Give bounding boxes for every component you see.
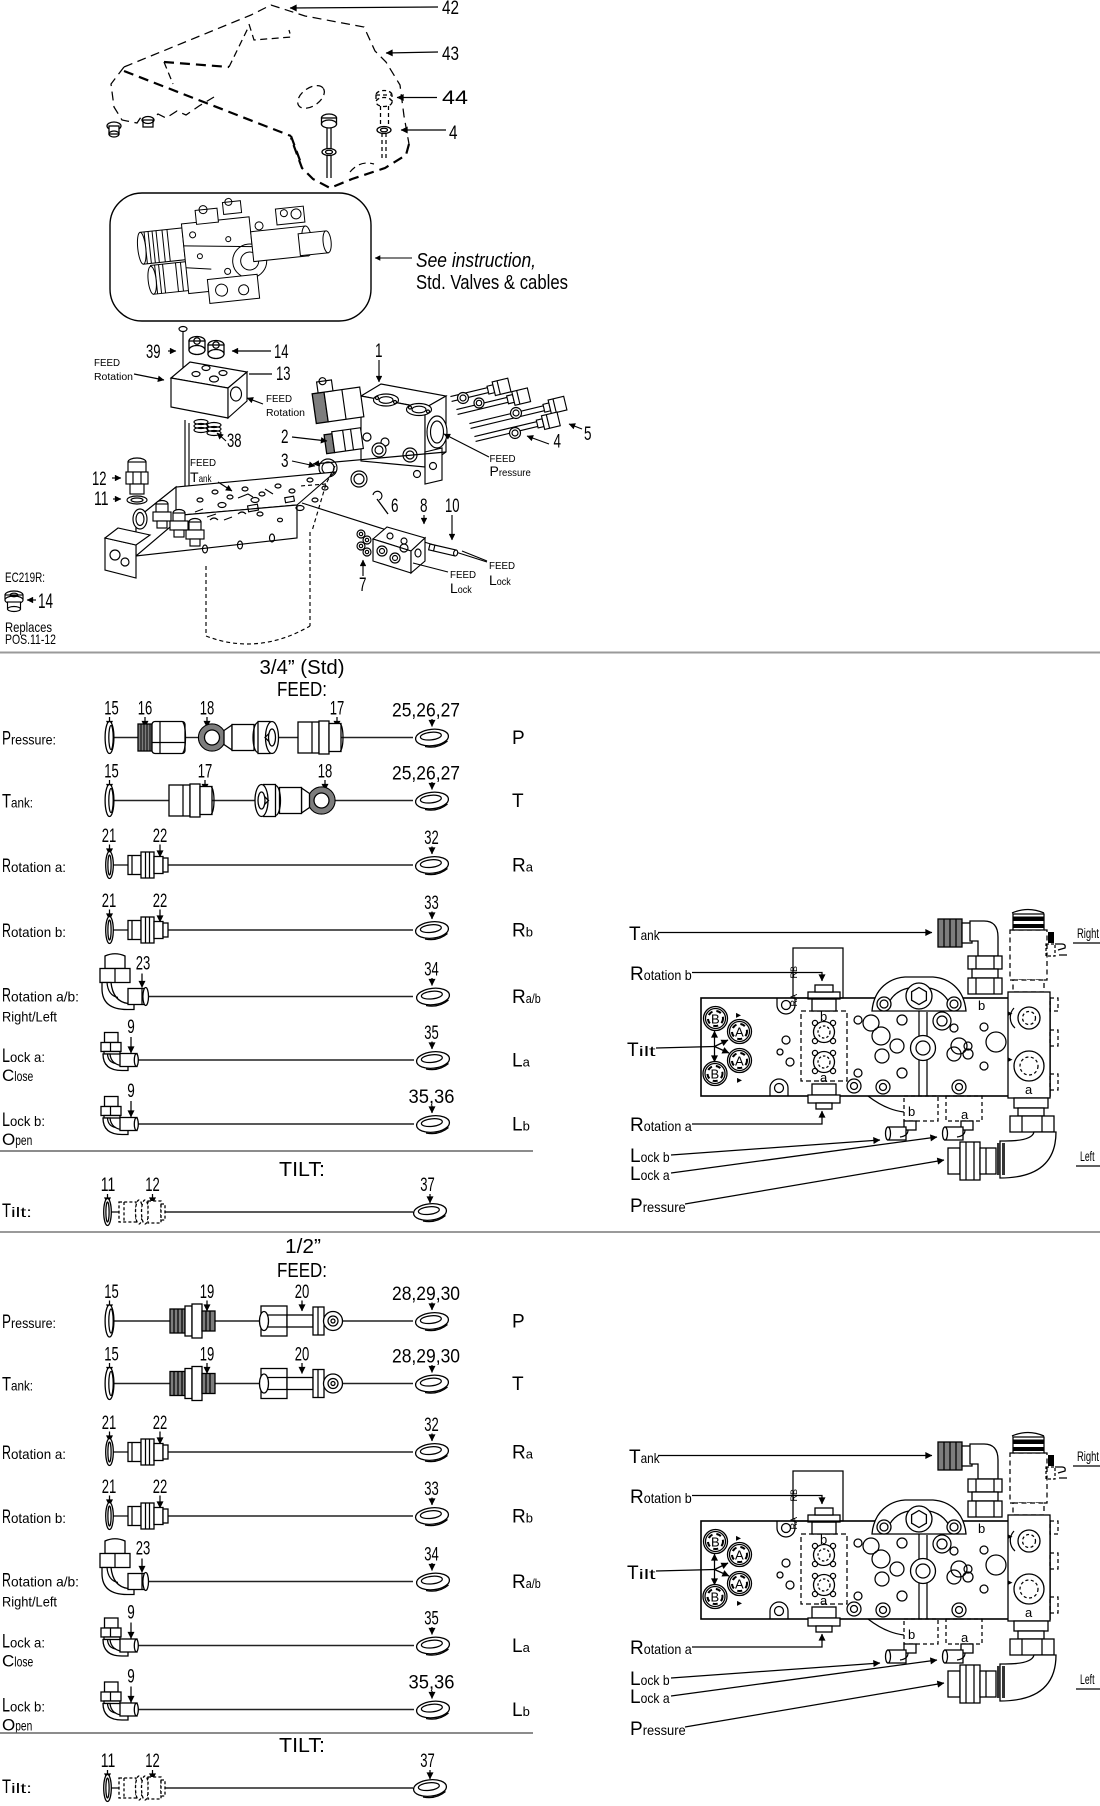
svg-text:12: 12 — [145, 1175, 160, 1196]
svg-text:Left: Left — [1080, 1149, 1095, 1164]
svg-text:Rotation b:: Rotation b: — [2, 1507, 66, 1528]
svg-text:Close: Close — [2, 1652, 33, 1671]
svg-text:3/4” (Std): 3/4” (Std) — [260, 657, 345, 679]
svg-text:A: A — [735, 1025, 744, 1040]
svg-text:22: 22 — [153, 891, 168, 912]
svg-text:33: 33 — [424, 1479, 439, 1500]
svg-text:38: 38 — [227, 431, 242, 452]
svg-text:Tilt: Tilt — [627, 1040, 656, 1061]
svg-text:28,29,30: 28,29,30 — [392, 1284, 460, 1305]
svg-text:14: 14 — [38, 590, 53, 613]
svg-text:FEED: FEED — [190, 457, 216, 469]
svg-text:9: 9 — [127, 1017, 135, 1038]
svg-text:FEED: FEED — [266, 393, 292, 405]
svg-text:37: 37 — [420, 1751, 435, 1772]
svg-text:TILT:: TILT: — [279, 1735, 325, 1757]
svg-text:13: 13 — [276, 364, 291, 385]
svg-text:18: 18 — [318, 762, 333, 783]
svg-text:Rb: Rb — [512, 921, 533, 942]
svg-text:Ra: Ra — [512, 856, 534, 877]
svg-text:18: 18 — [200, 699, 215, 720]
svg-text:A: A — [735, 1054, 744, 1069]
svg-text:Lb: Lb — [512, 1700, 530, 1721]
svg-text:FEED: FEED — [94, 357, 120, 369]
svg-text:Open: Open — [2, 1130, 32, 1149]
svg-text:Pressure: Pressure — [630, 1196, 686, 1217]
svg-text:FEED:: FEED: — [277, 679, 327, 701]
svg-text:Std. Valves & cables: Std. Valves & cables — [416, 272, 568, 294]
svg-text:22: 22 — [153, 1413, 168, 1434]
svg-text:Lock a:: Lock a: — [2, 1632, 45, 1653]
svg-text:8: 8 — [420, 496, 428, 517]
svg-text:B: B — [711, 1012, 720, 1027]
svg-text:23: 23 — [136, 1539, 151, 1560]
svg-text:3: 3 — [281, 451, 289, 472]
svg-text:Lock a:: Lock a: — [2, 1046, 45, 1067]
svg-text:22: 22 — [153, 826, 168, 847]
svg-text:35: 35 — [424, 1023, 439, 1044]
svg-text:23: 23 — [136, 954, 151, 975]
svg-text:FEED: FEED — [489, 560, 515, 572]
svg-text:Rotation a:: Rotation a: — [2, 1443, 66, 1464]
svg-text:12: 12 — [92, 469, 107, 490]
svg-text:9: 9 — [127, 1081, 135, 1102]
svg-text:37: 37 — [420, 1175, 435, 1196]
svg-text:a: a — [1025, 1082, 1033, 1097]
svg-text:Ra/b: Ra/b — [512, 1572, 541, 1593]
svg-text:Tilt:: Tilt: — [2, 1201, 32, 1222]
svg-text:6: 6 — [391, 496, 399, 517]
svg-text:▸: ▸ — [737, 1075, 742, 1086]
svg-text:T: T — [512, 1374, 524, 1395]
svg-text:POS.11-12: POS.11-12 — [5, 631, 56, 647]
svg-text:20: 20 — [295, 1282, 310, 1303]
svg-text:4: 4 — [554, 432, 562, 453]
svg-text:Pressure:: Pressure: — [2, 729, 56, 750]
svg-text:42: 42 — [442, 0, 459, 19]
svg-text:Tilt:: Tilt: — [2, 1777, 32, 1798]
svg-text:34: 34 — [424, 1545, 439, 1566]
svg-text:15: 15 — [104, 699, 119, 720]
svg-text:21: 21 — [102, 1413, 117, 1434]
svg-text:P: P — [512, 1312, 525, 1333]
svg-text:19: 19 — [200, 1282, 215, 1303]
svg-text:34: 34 — [424, 960, 439, 981]
svg-text:La: La — [512, 1051, 531, 1072]
svg-text:Rotation a:: Rotation a: — [2, 856, 66, 877]
svg-text:11: 11 — [101, 1175, 116, 1196]
svg-text:2: 2 — [281, 427, 289, 448]
svg-text:b: b — [978, 998, 985, 1013]
svg-text:21: 21 — [102, 1477, 117, 1498]
svg-text:15: 15 — [104, 1345, 119, 1366]
svg-text:a: a — [820, 1070, 828, 1085]
svg-text:11: 11 — [101, 1751, 116, 1772]
svg-text:Lock a: Lock a — [630, 1164, 670, 1185]
svg-text:Rotation a/b:: Rotation a/b: — [2, 1571, 79, 1592]
svg-text:15: 15 — [104, 762, 119, 783]
svg-text:Tank: Tank — [629, 924, 660, 945]
svg-text:Lb: Lb — [512, 1115, 530, 1136]
svg-text:14: 14 — [274, 342, 289, 363]
svg-text:Pressure:: Pressure: — [2, 1312, 56, 1333]
svg-text:7: 7 — [359, 575, 367, 596]
svg-text:28,29,30: 28,29,30 — [392, 1347, 460, 1368]
svg-text:Right: Right — [1077, 926, 1099, 941]
svg-text:La: La — [512, 1636, 531, 1657]
svg-text:▸: ▸ — [1008, 1008, 1013, 1018]
svg-text:▸: ▸ — [736, 1010, 741, 1021]
svg-text:35,36: 35,36 — [409, 1087, 455, 1108]
svg-text:32: 32 — [424, 828, 439, 849]
svg-text:11: 11 — [94, 489, 109, 510]
svg-text:16: 16 — [138, 699, 153, 720]
svg-text:21: 21 — [102, 826, 117, 847]
svg-text:TILT:: TILT: — [279, 1159, 325, 1181]
svg-text:Right/Left: Right/Left — [2, 1009, 57, 1025]
svg-text:▸: ▸ — [1008, 1054, 1013, 1064]
svg-text:a: a — [961, 1107, 969, 1122]
svg-text:Rb: Rb — [512, 1507, 533, 1528]
svg-text:22: 22 — [153, 1477, 168, 1498]
svg-text:33: 33 — [424, 893, 439, 914]
svg-text:B: B — [711, 1067, 720, 1082]
svg-text:Rotation: Rotation — [94, 371, 133, 383]
svg-text:9: 9 — [127, 1667, 135, 1688]
svg-text:20: 20 — [295, 1345, 310, 1366]
svg-text:32: 32 — [424, 1415, 439, 1436]
svg-text:b: b — [908, 1104, 915, 1119]
svg-text:Rotation: Rotation — [266, 407, 305, 419]
svg-text:Ra: Ra — [512, 1443, 534, 1464]
svg-text:17: 17 — [330, 699, 345, 720]
svg-text:44: 44 — [442, 88, 469, 109]
svg-text:T: T — [512, 791, 524, 812]
svg-text:Rotation b:: Rotation b: — [2, 921, 66, 942]
svg-text:Tank:: Tank: — [2, 1375, 33, 1396]
svg-text:EC219R:: EC219R: — [5, 569, 45, 585]
svg-text:9: 9 — [127, 1603, 135, 1624]
svg-text:Close: Close — [2, 1066, 33, 1085]
svg-text:P: P — [512, 728, 525, 749]
svg-text:15: 15 — [104, 1282, 119, 1303]
svg-text:FEED:: FEED: — [277, 1260, 327, 1282]
svg-text:Right/Left: Right/Left — [2, 1594, 57, 1610]
svg-text:21: 21 — [102, 891, 117, 912]
svg-text:Open: Open — [2, 1716, 32, 1735]
svg-text:Ra/b: Ra/b — [512, 987, 541, 1008]
svg-text:10: 10 — [445, 496, 460, 517]
svg-text:Rotation b: Rotation b — [630, 964, 692, 985]
svg-text:Tank:: Tank: — [2, 792, 33, 813]
svg-text:25,26,27: 25,26,27 — [392, 701, 460, 722]
svg-text:4: 4 — [449, 123, 458, 144]
svg-text:Rotation a/b:: Rotation a/b: — [2, 986, 79, 1007]
svg-text:12: 12 — [145, 1751, 160, 1772]
svg-text:1/2”: 1/2” — [285, 1236, 321, 1258]
svg-text:1: 1 — [375, 341, 383, 362]
svg-text:Lock b:: Lock b: — [2, 1110, 45, 1131]
svg-text:39: 39 — [146, 342, 161, 363]
svg-text:35,36: 35,36 — [409, 1673, 455, 1694]
svg-text:19: 19 — [200, 1345, 215, 1366]
svg-text:35: 35 — [424, 1609, 439, 1630]
svg-text:5: 5 — [584, 424, 592, 445]
svg-text:See instruction,: See instruction, — [416, 250, 536, 272]
svg-text:25,26,27: 25,26,27 — [392, 764, 460, 785]
svg-text:17: 17 — [198, 762, 213, 783]
svg-text:Rotation a: Rotation a — [630, 1115, 692, 1136]
svg-text:43: 43 — [442, 44, 459, 65]
svg-text:Lock b:: Lock b: — [2, 1696, 45, 1717]
